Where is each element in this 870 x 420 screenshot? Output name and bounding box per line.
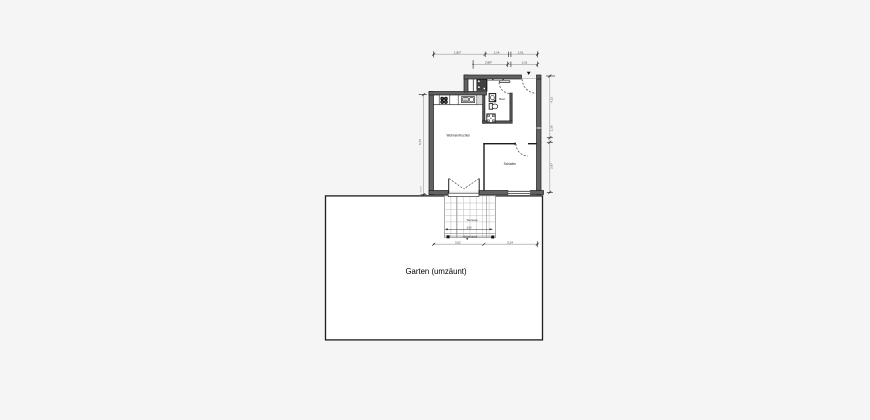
svg-text:2,87: 2,87 xyxy=(550,163,554,169)
svg-text:Schlafen: Schlafen xyxy=(504,162,517,166)
svg-text:3,00: 3,00 xyxy=(467,226,472,229)
svg-text:Terrasse: Terrasse xyxy=(466,218,478,222)
svg-text:Bad: Bad xyxy=(499,97,505,101)
svg-text:4,13: 4,13 xyxy=(550,97,554,103)
svg-text:1,14: 1,14 xyxy=(494,50,500,54)
svg-text:Holzterrasse: Holzterrasse xyxy=(463,234,478,238)
svg-text:5,76: 5,76 xyxy=(418,139,422,145)
svg-text:Wohnen/Kochen: Wohnen/Kochen xyxy=(447,134,471,138)
svg-text:1,01: 1,01 xyxy=(518,50,524,54)
svg-text:1,01: 1,01 xyxy=(522,61,528,65)
svg-text:1,39: 1,39 xyxy=(550,125,554,131)
svg-text:3,02: 3,02 xyxy=(455,240,461,244)
svg-text:3,24: 3,24 xyxy=(507,240,513,244)
svg-text:Garten (umzäunt): Garten (umzäunt) xyxy=(405,267,467,276)
svg-text:2,88⁵: 2,88⁵ xyxy=(485,61,493,65)
svg-text:1,82⁵: 1,82⁵ xyxy=(454,50,462,54)
